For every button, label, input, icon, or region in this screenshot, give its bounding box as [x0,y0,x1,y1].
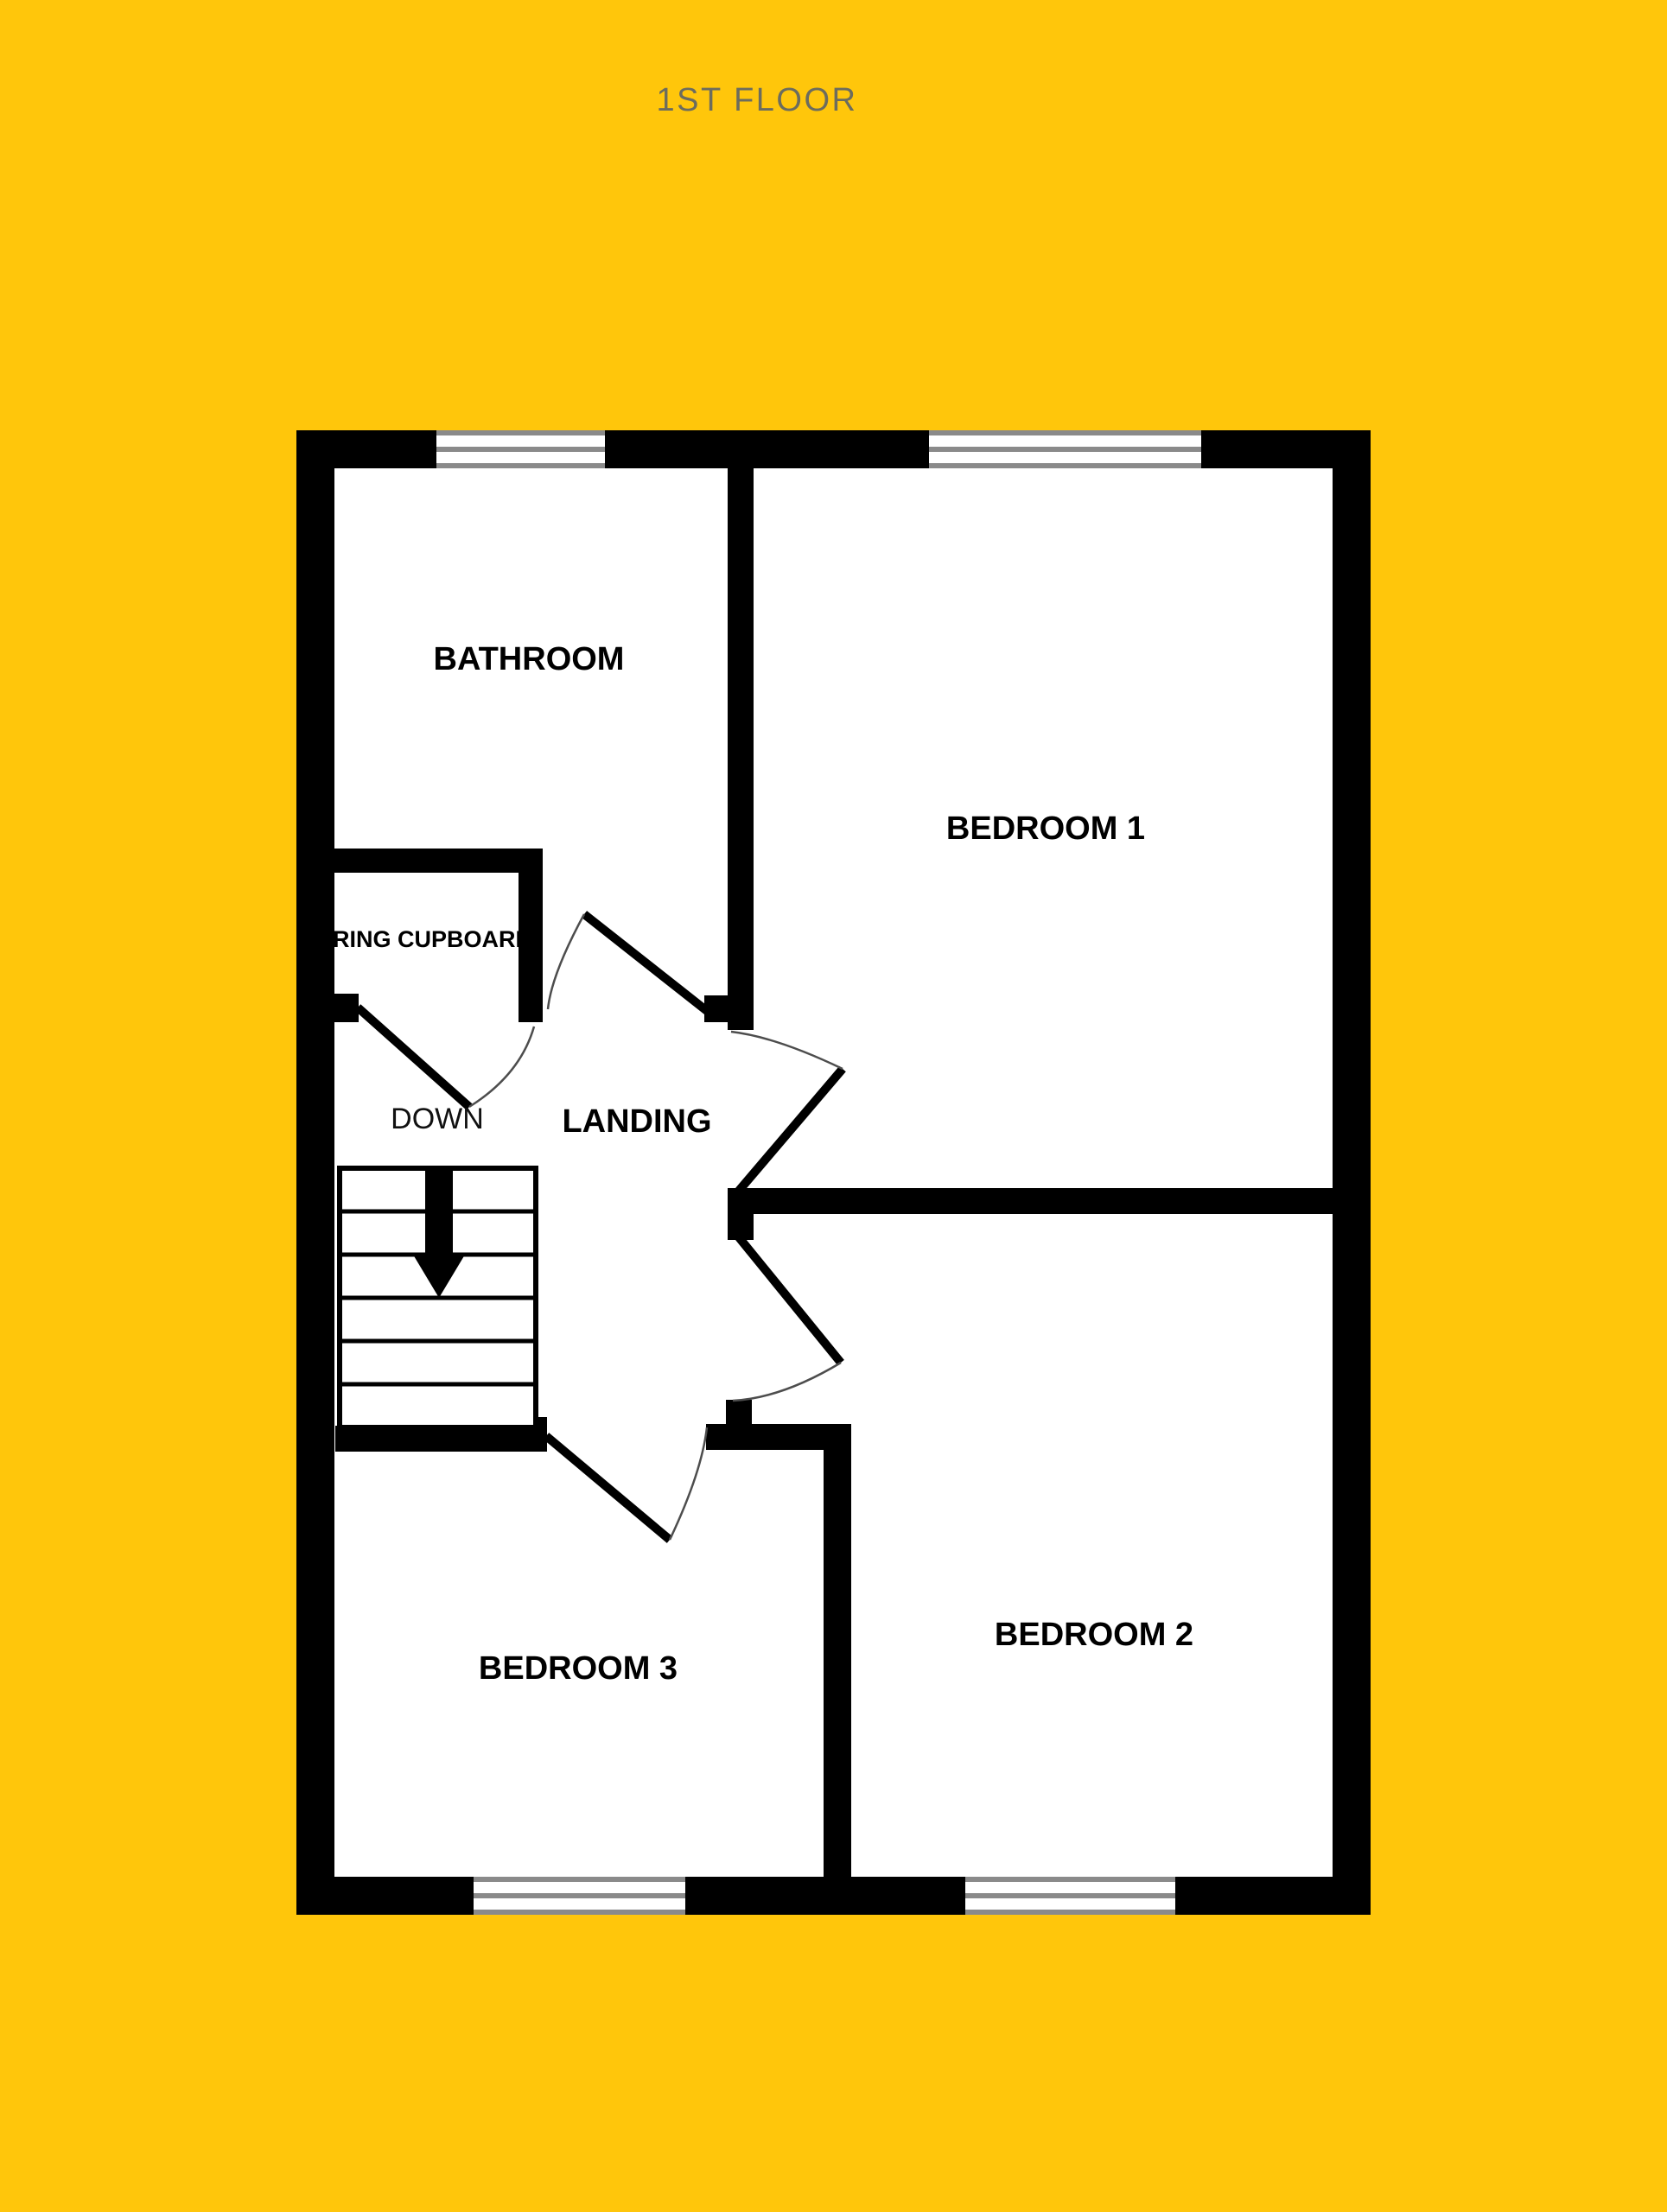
wall-landing-bedroom2-bottom [706,1424,851,1450]
room-label-bathroom: BATHROOM [434,641,625,677]
room-landing [543,1022,728,1424]
bedroom1-door-jamb [728,1188,754,1240]
room-label-landing: LANDING [562,1103,711,1140]
stairs-direction-label: DOWN [391,1103,484,1135]
wall-airing-cupboard-top [296,849,543,873]
window-frame-bar [929,463,1201,468]
outer-wall-left [296,430,334,1915]
room-label-bedroom-1: BEDROOM 1 [946,810,1145,847]
wall-bedroom1-bedroom2 [728,1188,1371,1214]
window-frame-bar [929,447,1201,452]
floor-plan-canvas: 1ST FLOOR AIRING CUPBOARD [0,0,1667,2212]
outer-wall-bottom [296,1877,1371,1915]
window-frame-bar [436,430,605,435]
outer-wall-right [1333,430,1371,1915]
room-bedroom-2 [851,1214,1333,1877]
window-bathroom [436,430,605,468]
window-frame-bar [474,1910,685,1915]
window-frame-bar [965,1893,1175,1898]
bedroom2-door-jamb [726,1400,752,1424]
staircase [340,1168,536,1427]
window-frame-bar [474,1893,685,1898]
window-frame-bar [474,1877,685,1882]
window-frame-bar [965,1877,1175,1882]
room-label-airing-cupboard: AIRING CUPBOARD [309,926,532,952]
stairs-down-arrow-shaft [425,1168,453,1257]
window-frame-bar [436,463,605,468]
wall-bathroom-bedroom1 [728,430,754,1030]
room-label-bedroom-3: BEDROOM 3 [479,1650,678,1687]
page-title: 1ST FLOOR [657,82,858,118]
wall-bedroom3-bedroom2 [824,1450,851,1877]
window-frame-bar [436,447,605,452]
window-frame-bar [929,430,1201,435]
floor-plan-page: 1ST FLOOR AIRING CUPBOARD [0,0,1667,2212]
cupboard-door-jamb [334,994,359,1022]
window-bedroom3 [474,1877,685,1915]
room-label-bedroom-2: BEDROOM 2 [995,1617,1193,1653]
wall-airing-cupboard-right [519,873,543,1022]
window-bedroom2 [965,1877,1175,1915]
window-frame-bar [965,1910,1175,1915]
window-bedroom1 [929,430,1201,468]
